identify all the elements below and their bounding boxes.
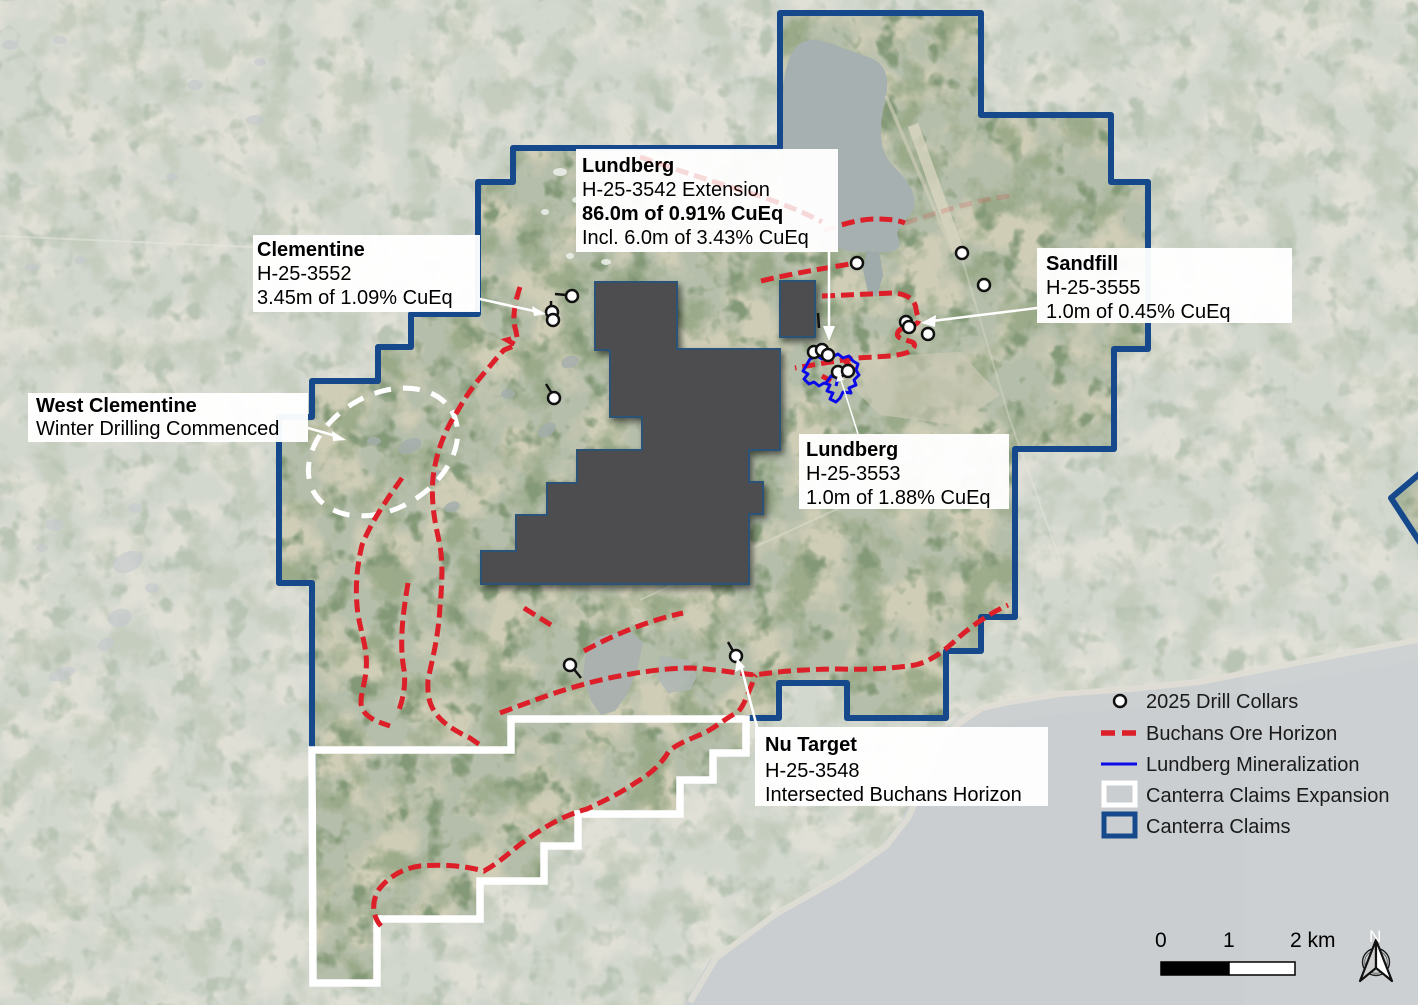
svg-text:Sandfill: Sandfill — [1046, 253, 1118, 275]
svg-text:West Clementine: West Clementine — [36, 395, 197, 417]
svg-text:Buchans Ore Horizon: Buchans Ore Horizon — [1146, 723, 1337, 745]
svg-text:Intersected Buchans Horizon: Intersected Buchans Horizon — [765, 784, 1022, 806]
svg-text:Lundberg Mineralization: Lundberg Mineralization — [1146, 754, 1359, 776]
svg-text:0: 0 — [1155, 929, 1167, 952]
svg-text:Lundberg: Lundberg — [806, 439, 898, 461]
svg-text:Canterra Claims: Canterra Claims — [1146, 816, 1290, 838]
svg-text:Clementine: Clementine — [257, 239, 365, 261]
svg-text:N: N — [1369, 927, 1381, 946]
svg-text:H-25-3552: H-25-3552 — [257, 263, 352, 285]
svg-text:1.0m of 1.88% CuEq: 1.0m of 1.88% CuEq — [806, 487, 991, 509]
svg-text:86.0m of 0.91% CuEq: 86.0m of 0.91% CuEq — [582, 203, 783, 225]
svg-text:1.0m of 0.45% CuEq: 1.0m of 0.45% CuEq — [1046, 301, 1231, 323]
svg-text:Incl. 6.0m of 3.43% CuEq: Incl. 6.0m of 3.43% CuEq — [582, 227, 809, 249]
svg-text:H-25-3553: H-25-3553 — [806, 463, 901, 485]
svg-text:2 km: 2 km — [1290, 929, 1336, 952]
svg-text:3.45m of 1.09% CuEq: 3.45m of 1.09% CuEq — [257, 287, 453, 309]
svg-text:H-25-3548: H-25-3548 — [765, 760, 860, 782]
svg-text:Nu Target: Nu Target — [765, 734, 857, 756]
svg-text:Winter Drilling Commenced: Winter Drilling Commenced — [36, 418, 279, 440]
svg-text:2025 Drill Collars: 2025 Drill Collars — [1146, 691, 1298, 713]
svg-text:1: 1 — [1223, 929, 1235, 952]
svg-text:H-25-3555: H-25-3555 — [1046, 277, 1141, 299]
svg-text:Canterra Claims Expansion: Canterra Claims Expansion — [1146, 785, 1389, 807]
